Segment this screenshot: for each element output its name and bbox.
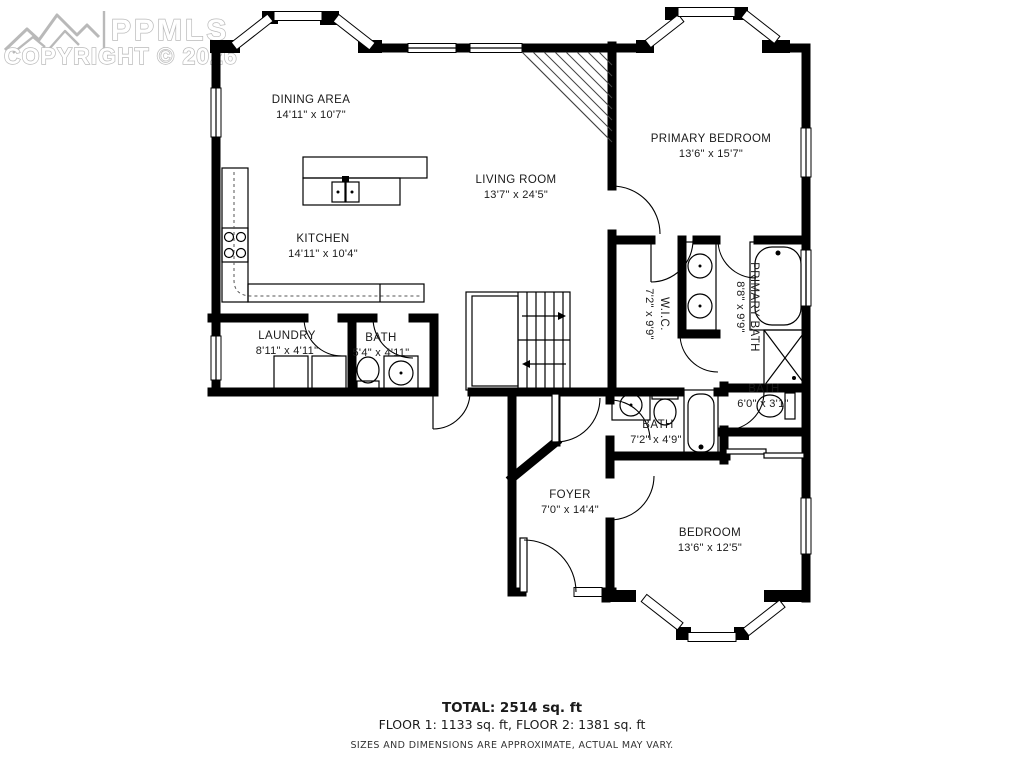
label-bath-main: BATH <box>365 332 396 344</box>
dims-living: 13'7" x 24'5" <box>484 189 548 201</box>
stairs-upper-hatch <box>522 52 612 142</box>
wic-lower-door <box>680 334 718 372</box>
kitchen-island <box>303 157 427 205</box>
garage-door <box>433 392 470 429</box>
dims-bedroom: 13'6" x 12'5" <box>678 542 742 554</box>
dims-foyer: 7'0" x 14'4" <box>541 504 599 516</box>
dims-bath-hall: 7'2" x 4'9" <box>630 434 681 446</box>
foyer-hall-door <box>552 394 600 442</box>
label-wic: W.I.C. <box>658 297 670 331</box>
foyer-bedroom-door <box>610 476 654 520</box>
room-labels: DINING AREA 14'11" x 10'7" LIVING ROOM 1… <box>256 94 789 554</box>
sink <box>384 356 418 390</box>
toilet <box>357 357 379 390</box>
counter-left <box>222 168 248 302</box>
dims-dining: 14'11" x 10'7" <box>276 109 346 121</box>
dims-bath-small: 6'0" x 3'1" <box>737 398 788 410</box>
primary-bedroom-door <box>612 186 660 234</box>
watermark: PPMLS COPYRIGHT © 2026 <box>4 11 238 69</box>
bathtub <box>684 390 718 456</box>
shower <box>764 330 806 386</box>
label-bath-hall: BATH <box>642 419 673 431</box>
footer: TOTAL: 2514 sq. ft FLOOR 1: 1133 sq. ft,… <box>350 700 673 751</box>
kitchen-fixtures <box>222 157 427 302</box>
footer-total: TOTAL: 2514 sq. ft <box>442 700 583 716</box>
label-bedroom: BEDROOM <box>679 527 741 539</box>
dims-kitchen: 14'11" x 10'4" <box>288 248 358 260</box>
dryer <box>312 356 346 390</box>
label-foyer: FOYER <box>549 489 591 501</box>
label-primary-bedroom: PRIMARY BEDROOM <box>651 133 772 145</box>
dims-laundry: 8'11" x 4'11" <box>256 345 319 357</box>
footer-disclaimer: SIZES AND DIMENSIONS ARE APPROXIMATE, AC… <box>350 740 673 751</box>
stairs-down-arrow <box>522 360 566 368</box>
dims-primary-bath: 8'8" x 9'9" <box>734 281 746 332</box>
dims-wic: 7'2" x 9'9" <box>643 288 655 339</box>
label-dining: DINING AREA <box>272 94 351 106</box>
label-kitchen: KITCHEN <box>296 233 349 245</box>
walls <box>212 46 806 598</box>
wic-door <box>651 240 693 282</box>
counter-bottom <box>248 284 424 302</box>
bedroom-closet-doors <box>726 449 804 458</box>
label-living: LIVING ROOM <box>475 174 556 186</box>
stove <box>222 228 248 262</box>
label-laundry: LAUNDRY <box>258 330 316 342</box>
label-primary-bath: PRIMARY BATH <box>748 262 760 352</box>
bath-main-fixtures <box>357 356 418 390</box>
double-vanity <box>684 242 716 330</box>
laundry-fixtures <box>274 356 346 390</box>
dims-bath-main: 5'4" x 4'11" <box>353 347 410 359</box>
dims-primary-bedroom: 13'6" x 15'7" <box>679 148 743 160</box>
stairs-up-arrow <box>522 312 566 320</box>
label-bath-small: BATH <box>748 383 779 395</box>
staircase <box>466 292 570 390</box>
floor-plan: PPMLS COPYRIGHT © 2026 <box>0 0 1024 767</box>
kitchen-sink <box>332 176 359 202</box>
footer-floors: FLOOR 1: 1133 sq. ft, FLOOR 2: 1381 sq. … <box>379 717 646 732</box>
front-door <box>520 538 576 592</box>
washer <box>274 356 308 390</box>
watermark-copyright: COPYRIGHT © 2026 <box>4 43 238 69</box>
